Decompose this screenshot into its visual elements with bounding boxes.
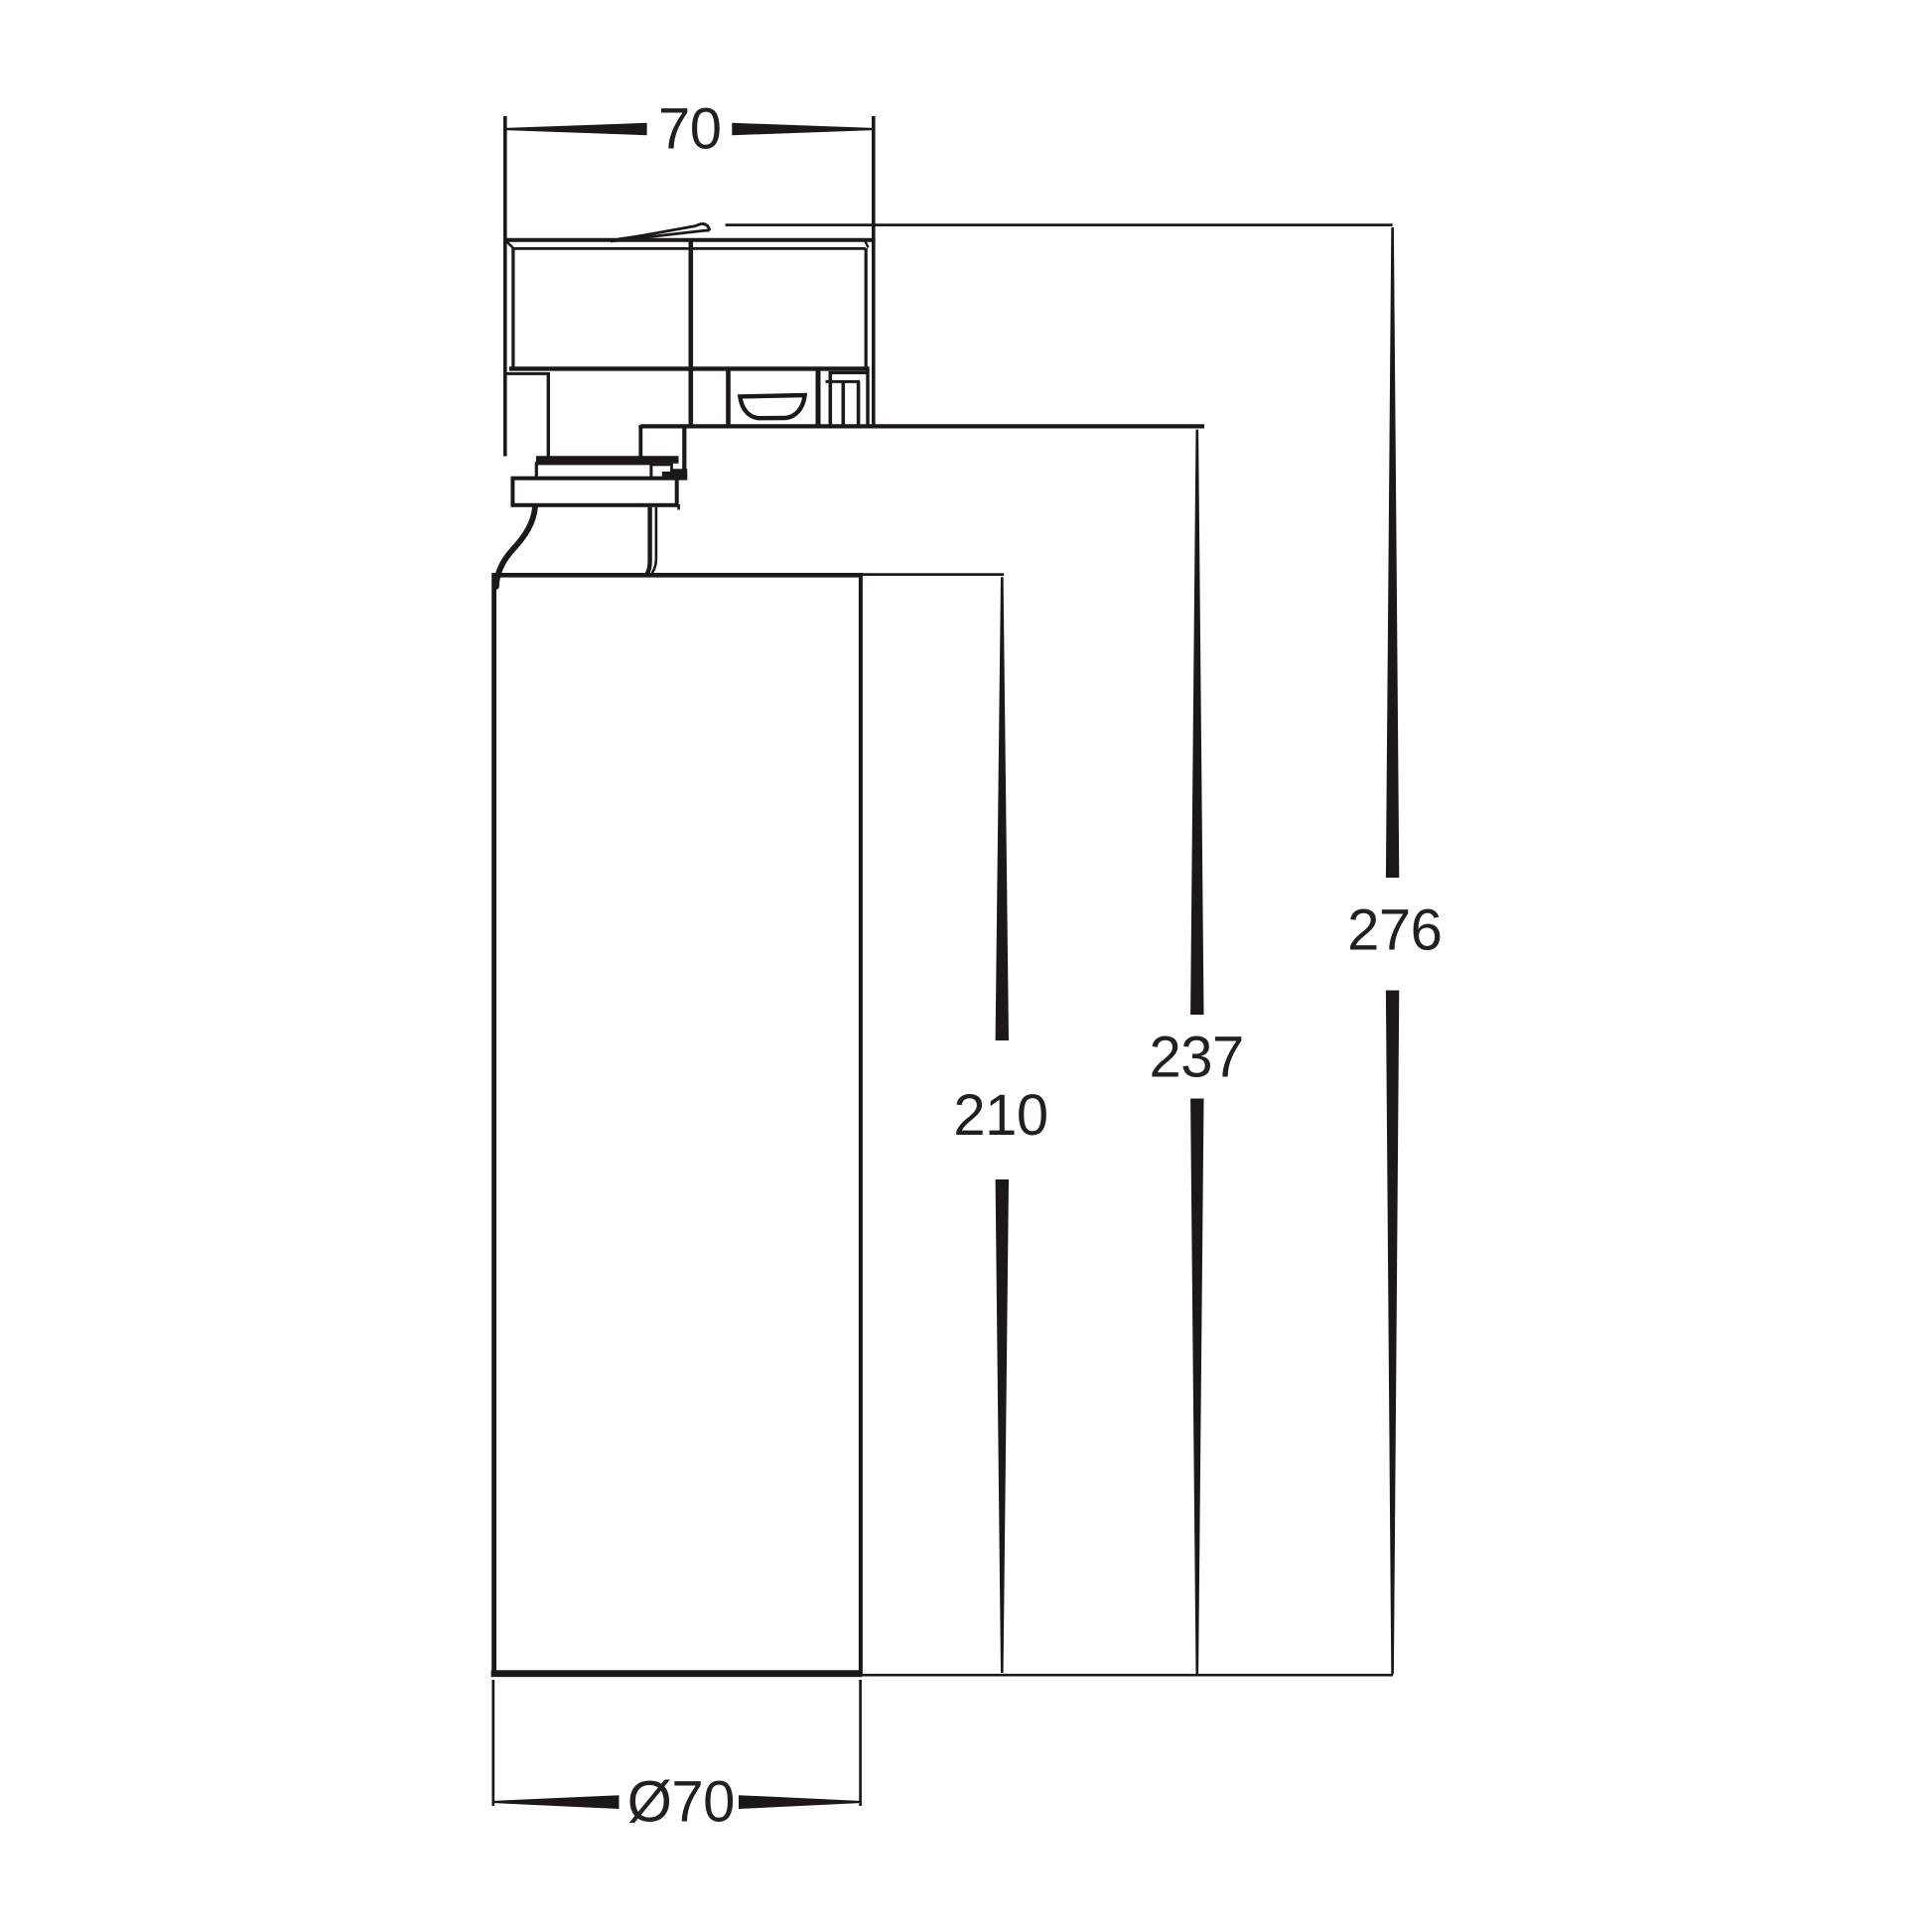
svg-text:Ø70: Ø70 — [627, 1770, 735, 1835]
svg-text:276: 276 — [1347, 898, 1442, 963]
svg-text:210: 210 — [953, 1083, 1047, 1148]
svg-text:70: 70 — [658, 97, 722, 162]
svg-text:237: 237 — [1150, 1026, 1244, 1090]
